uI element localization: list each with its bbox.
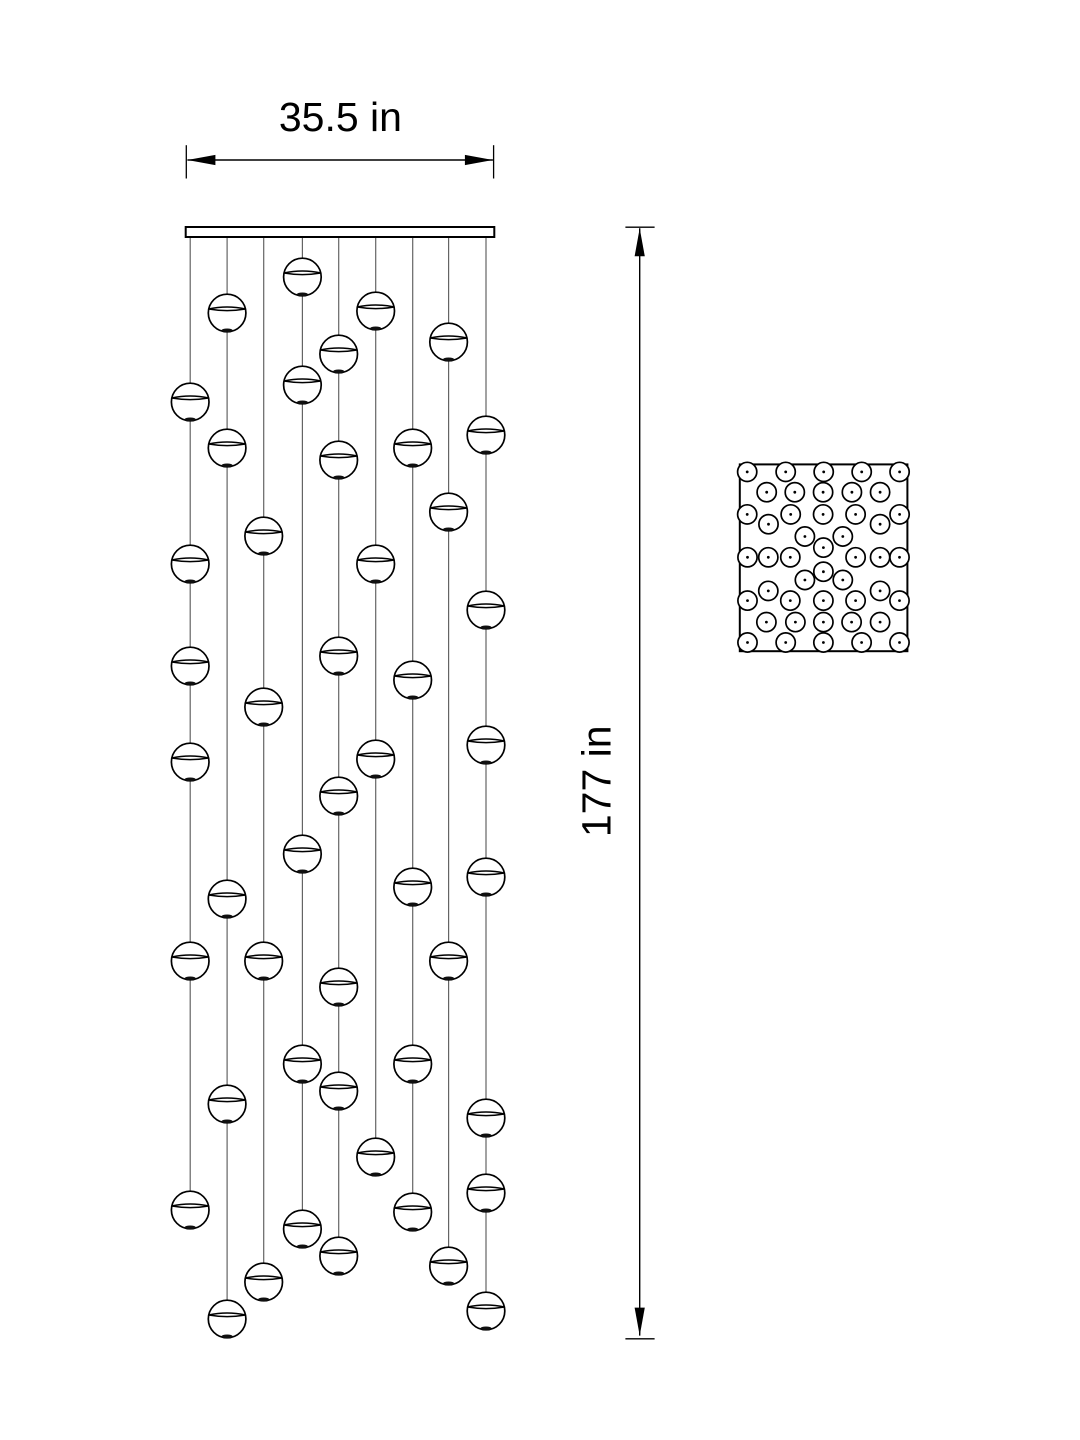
svg-text:177 in: 177 in (574, 725, 620, 837)
svg-text:35.5 in: 35.5 in (279, 94, 402, 140)
